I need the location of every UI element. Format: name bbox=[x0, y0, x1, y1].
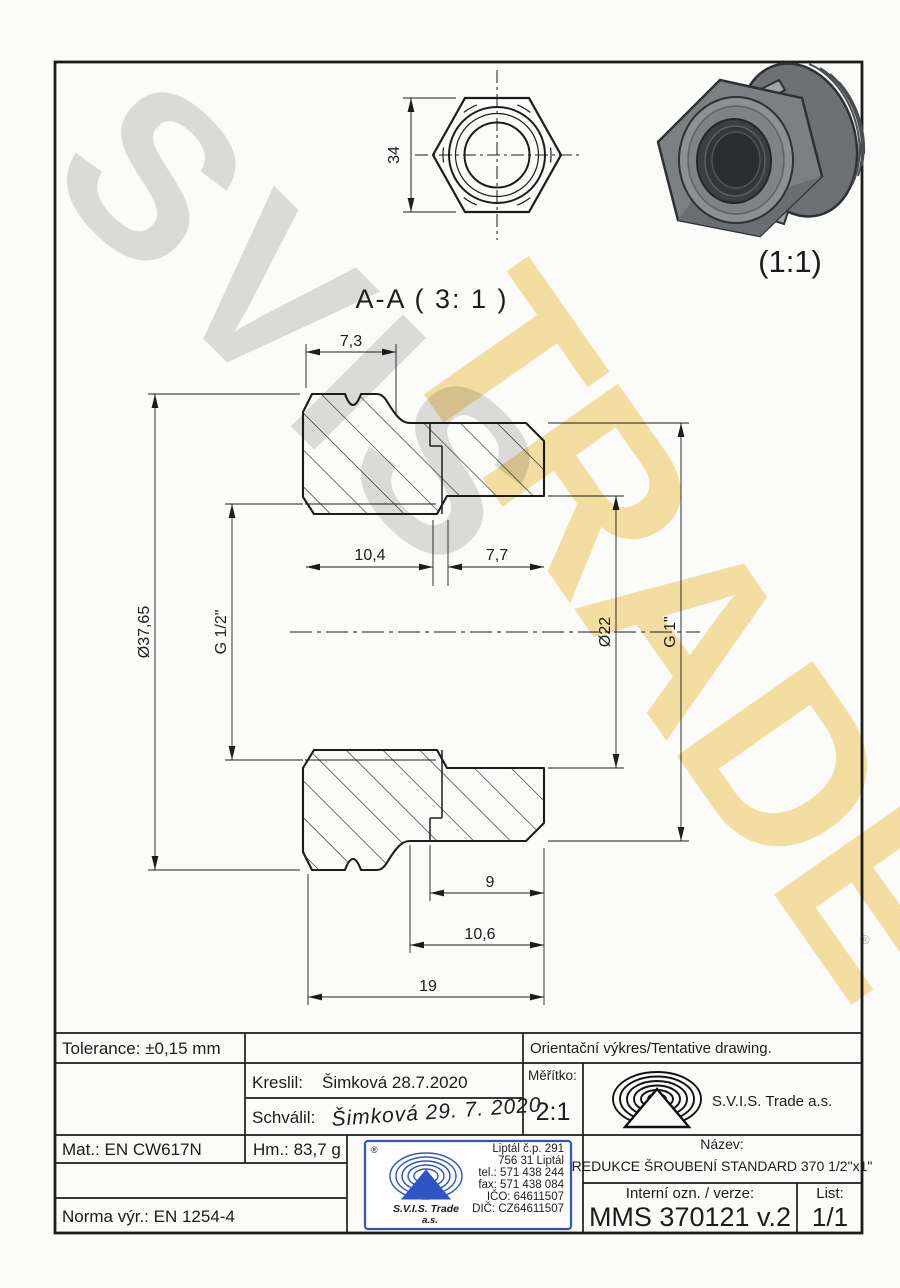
drawing-sheet: SVIS bbox=[0, 0, 900, 1288]
dim-label-across-flats: 34 bbox=[386, 146, 403, 164]
sheet-value: 1/1 bbox=[812, 1202, 848, 1232]
dim-label-bore-diameter: Ø22 bbox=[597, 617, 614, 647]
detail-3d-view: (1:1) bbox=[658, 49, 875, 279]
dim-label-step-length: 10,6 bbox=[464, 926, 495, 943]
stamp-address-line: Liptál č.p. 291 bbox=[492, 1143, 564, 1155]
orientation-note: Orientační výkres/Tentative drawing. bbox=[530, 1040, 772, 1057]
drawn-value: Šimková 28.7.2020 bbox=[322, 1073, 468, 1092]
stamp-registered: ® bbox=[371, 1145, 378, 1155]
dim-label-thread-length: 9 bbox=[486, 874, 495, 891]
company-name: S.V.I.S. Trade a.s. bbox=[712, 1093, 832, 1110]
dim-label-hex-thickness: 7,3 bbox=[340, 333, 362, 350]
stamp-address-line: fax: 571 438 084 bbox=[478, 1179, 564, 1191]
internal-value: MMS 370121 v.2 bbox=[589, 1202, 791, 1232]
sheet-label: List: bbox=[816, 1185, 844, 1202]
section-view: 7,3 Ø37,65 G 1/2" 10,4 7,7 Ø22 G 1" 9 10… bbox=[136, 333, 700, 1005]
dim-label-depth-large: 7,7 bbox=[486, 547, 508, 564]
company-stamp: ® S.V.I.S. Trade a.s. Liptál č.p. 291 75… bbox=[365, 1141, 571, 1229]
stamp-company: S.V.I.S. Trade bbox=[393, 1203, 459, 1215]
weight-text: Hm.: 83,7 g bbox=[253, 1140, 341, 1159]
stamp-address-line: 756 31 Liptál bbox=[498, 1155, 564, 1167]
norm-text: Norma výr.: EN 1254-4 bbox=[62, 1207, 235, 1226]
dim-label-total-length: 19 bbox=[419, 978, 437, 995]
dim-label-thread-small: G 1/2" bbox=[213, 610, 230, 655]
cut-material-bottom bbox=[303, 750, 544, 870]
stamp-address-line: IČO: 64611507 bbox=[487, 1190, 564, 1203]
stamp-address-line: DIČ: CZ64611507 bbox=[472, 1202, 564, 1215]
scale-value: 2:1 bbox=[536, 1098, 571, 1126]
company-logo bbox=[613, 1072, 701, 1127]
dim-label-outer-diameter: Ø37,65 bbox=[136, 606, 153, 659]
dim-label-depth-small: 10,4 bbox=[354, 547, 385, 564]
material-text: Mat.: EN CW617N bbox=[62, 1140, 202, 1159]
bore-thread-2 bbox=[712, 132, 760, 188]
cut-material-top bbox=[303, 394, 544, 514]
stamp-company-suffix: a.s. bbox=[422, 1215, 438, 1226]
title-block: Tolerance: ±0,15 mm Orientační výkres/Te… bbox=[55, 1033, 872, 1233]
approved-signature: Šimková 29. 7. 2020 bbox=[331, 1093, 543, 1131]
section-label: A-A ( 3: 1 ) bbox=[355, 284, 508, 314]
tolerance-text: Tolerance: ±0,15 mm bbox=[62, 1039, 221, 1058]
internal-label: Interní ozn. / verze: bbox=[626, 1185, 754, 1202]
stamp-address-line: tel.: 571 438 244 bbox=[478, 1167, 564, 1179]
technical-drawing: 34 A-A ( 3: 1 ) bbox=[0, 0, 900, 1288]
approved-label: Schválil: bbox=[252, 1108, 315, 1127]
dim-label-thread-large: G 1" bbox=[662, 616, 679, 647]
name-value: REDUKCE ŠROUBENÍ STANDARD 370 1/2"x1" bbox=[572, 1158, 873, 1174]
top-view: 34 bbox=[386, 70, 579, 240]
name-label: Název: bbox=[700, 1136, 744, 1152]
drawn-label: Kreslil: bbox=[252, 1073, 303, 1092]
detail-scale-label: (1:1) bbox=[758, 244, 822, 279]
scale-label: Měřítko: bbox=[528, 1068, 577, 1083]
